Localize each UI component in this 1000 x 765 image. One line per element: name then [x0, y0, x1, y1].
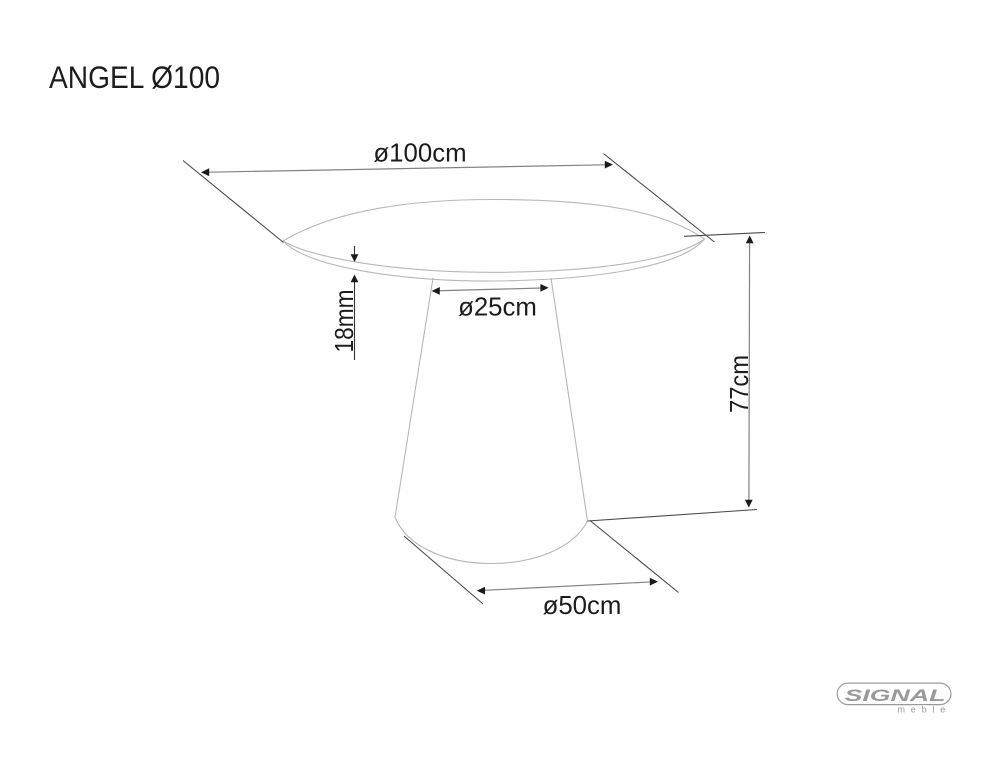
svg-text:ø25cm: ø25cm [458, 294, 537, 322]
svg-text:ø50cm: ø50cm [543, 592, 622, 620]
svg-text:SIGNAL: SIGNAL [845, 686, 946, 705]
svg-text:18mm: 18mm [329, 290, 359, 353]
svg-text:ANGEL Ø100: ANGEL Ø100 [49, 59, 220, 95]
svg-text:77cm: 77cm [724, 355, 754, 413]
svg-text:meble: meble [898, 705, 952, 715]
svg-text:ø100cm: ø100cm [373, 140, 466, 168]
